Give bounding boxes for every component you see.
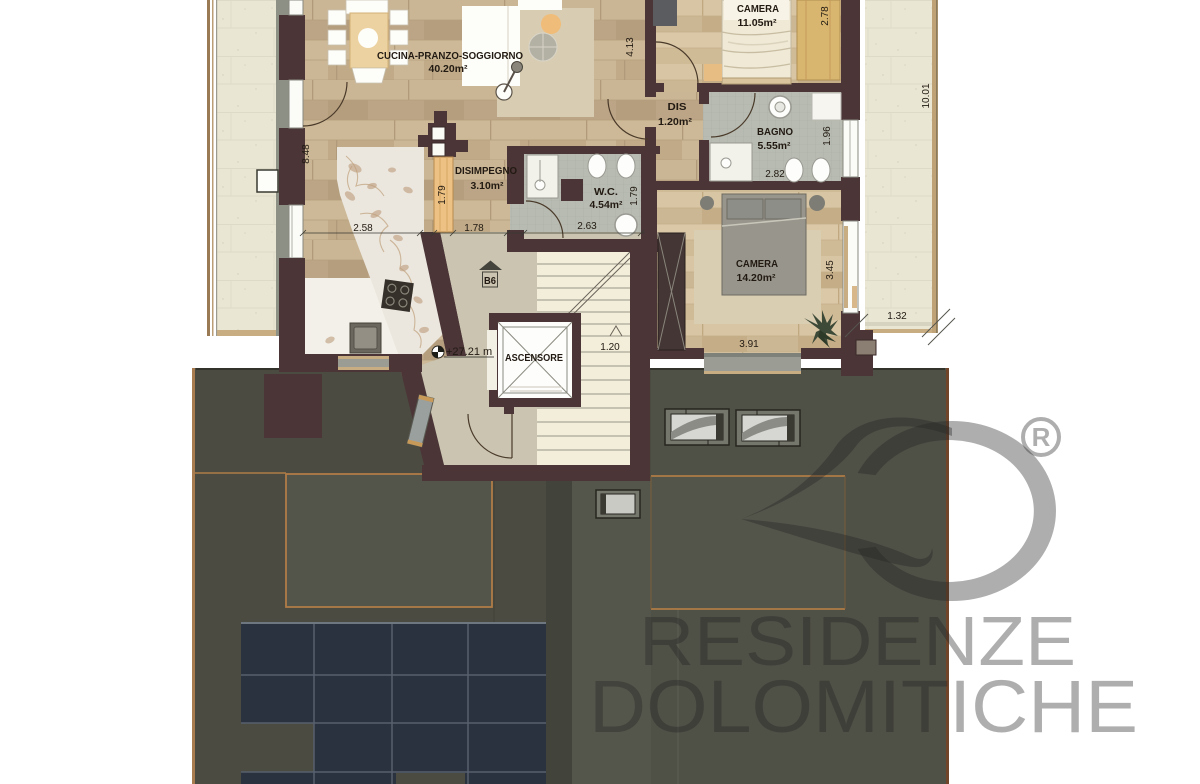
svg-text:3.45: 3.45 <box>825 260 836 280</box>
svg-text:11.05m²: 11.05m² <box>738 17 778 29</box>
svg-text:1.32: 1.32 <box>887 311 907 322</box>
svg-text:3.91: 3.91 <box>739 339 759 350</box>
svg-text:1.79: 1.79 <box>629 186 640 206</box>
svg-text:CAMERA: CAMERA <box>736 258 778 270</box>
svg-text:1.96: 1.96 <box>822 126 833 146</box>
svg-text:4.54m²: 4.54m² <box>590 199 623 211</box>
svg-text:1.20: 1.20 <box>600 342 620 353</box>
svg-text:CAMERA: CAMERA <box>737 3 779 15</box>
svg-text:R: R <box>1032 422 1051 452</box>
svg-text:2.78: 2.78 <box>820 6 831 26</box>
svg-text:4.13: 4.13 <box>625 37 636 57</box>
svg-text:BAGNO: BAGNO <box>757 126 793 138</box>
svg-text:+27.21 m: +27.21 m <box>446 346 492 358</box>
svg-text:W.C.: W.C. <box>594 186 618 198</box>
svg-text:8.48: 8.48 <box>301 144 312 164</box>
svg-text:DISIMPEGNO: DISIMPEGNO <box>455 165 517 177</box>
svg-text:2.82: 2.82 <box>765 169 785 180</box>
svg-text:2.63: 2.63 <box>577 221 597 232</box>
svg-text:ASCENSORE: ASCENSORE <box>505 352 563 364</box>
svg-text:CUCINA-PRANZO-SOGGIORNO: CUCINA-PRANZO-SOGGIORNO <box>377 50 523 62</box>
svg-text:B6: B6 <box>484 275 496 287</box>
svg-text:40.20m²: 40.20m² <box>429 63 469 75</box>
svg-text:3.10m²: 3.10m² <box>471 180 504 192</box>
svg-text:2.58: 2.58 <box>353 223 373 234</box>
svg-text:5.55m²: 5.55m² <box>758 140 791 152</box>
svg-text:1.20m²: 1.20m² <box>658 116 693 128</box>
svg-text:14.20m²: 14.20m² <box>737 272 777 284</box>
svg-text:10.01: 10.01 <box>921 83 932 108</box>
svg-text:1.79: 1.79 <box>437 185 448 205</box>
svg-text:1.78: 1.78 <box>464 223 484 234</box>
svg-text:DIS: DIS <box>668 101 687 113</box>
svg-text:DOLOMITICHE: DOLOMITICHE <box>589 665 1138 748</box>
